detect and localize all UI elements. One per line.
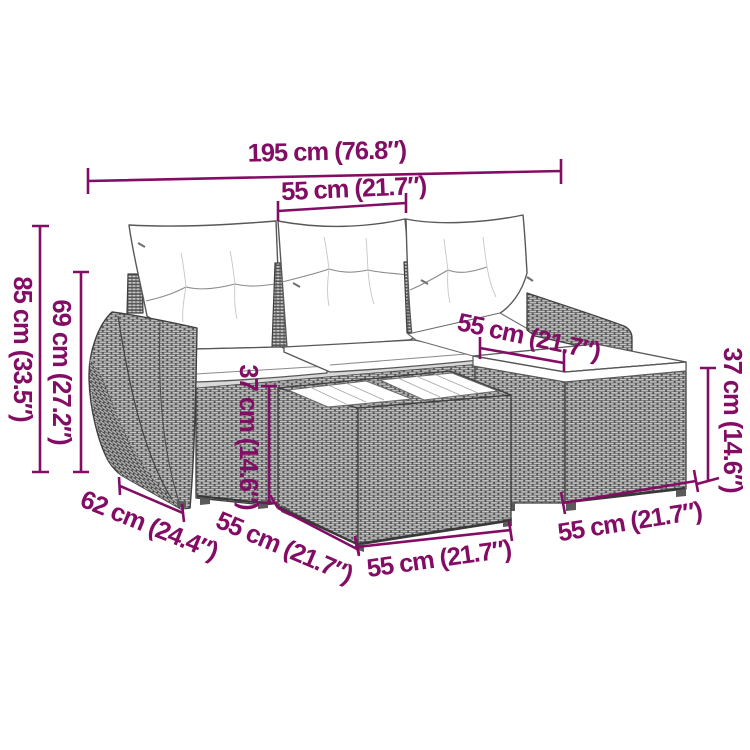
svg-text:85 cm (33.5″): 85 cm (33.5″) <box>8 276 36 422</box>
svg-text:195 cm (76.8″): 195 cm (76.8″) <box>247 136 406 167</box>
svg-text:69 cm (27.2″): 69 cm (27.2″) <box>47 299 75 445</box>
svg-text:37 cm (14.6″): 37 cm (14.6″) <box>718 347 746 493</box>
svg-text:37 cm (14.6″): 37 cm (14.6″) <box>234 364 262 510</box>
